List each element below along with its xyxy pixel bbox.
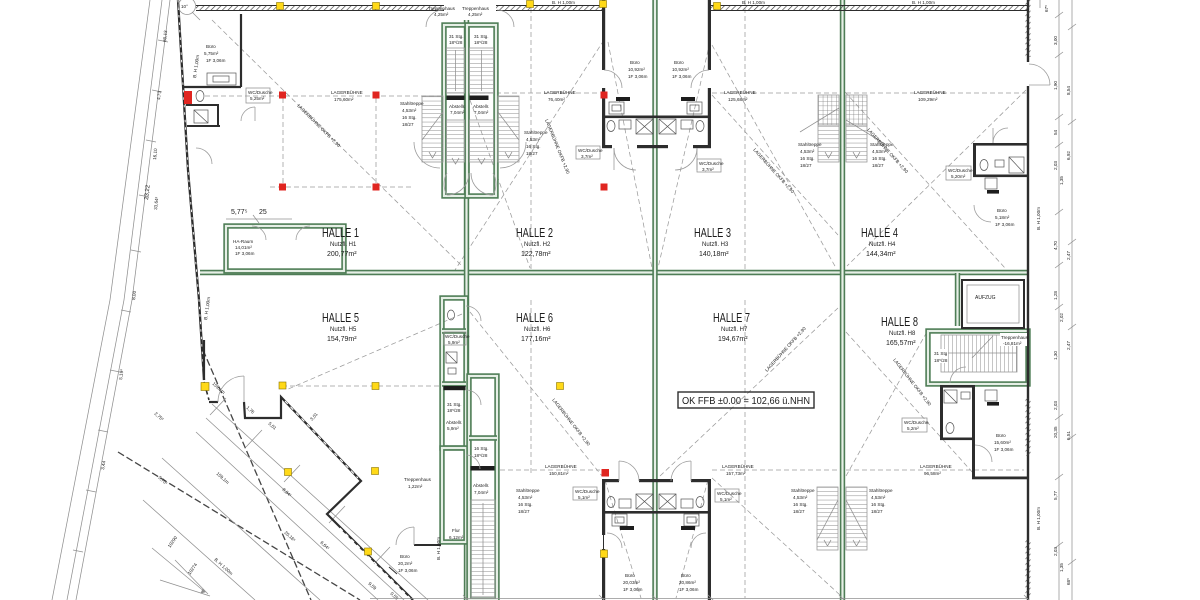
svg-text:Abstellr.: Abstellr.: [473, 483, 489, 488]
svg-text:20,2m²: 20,2m²: [398, 561, 413, 566]
svg-text:3,7m²: 3,7m²: [702, 167, 714, 172]
svg-text:1F 3,06m: 1F 3,06m: [206, 58, 226, 63]
svg-text:LAGERBÜHNE: LAGERBÜHNE: [914, 89, 946, 95]
svg-text:1F 3,06m: 1F 3,06m: [995, 222, 1015, 227]
svg-text:Büro: Büro: [630, 60, 640, 65]
svg-text:4,25m²: 4,25m²: [434, 12, 449, 17]
svg-text:5,9m²: 5,9m²: [447, 426, 459, 431]
svg-text:HALLE 1: HALLE 1: [322, 225, 359, 240]
svg-text:AUFZUG: AUFZUG: [975, 295, 996, 301]
svg-text:B. H 1,00m: B. H 1,00m: [742, 0, 765, 5]
svg-text:7,04m²: 7,04m²: [474, 110, 489, 115]
svg-text:6,92: 6,92: [1066, 151, 1071, 160]
svg-text:18/27: 18/27: [526, 151, 538, 156]
svg-text:HALLE 4: HALLE 4: [861, 225, 898, 240]
svg-text:Nutzfl. H7: Nutzfl. H7: [721, 327, 748, 333]
svg-text:18⁵/28: 18⁵/28: [474, 453, 488, 458]
svg-text:2,03: 2,03: [1053, 547, 1058, 556]
svg-text:1,90: 1,90: [1053, 81, 1058, 90]
svg-text:31 Stg: 31 Stg: [934, 351, 948, 356]
svg-text:LAGERBÜHNE: LAGERBÜHNE: [722, 463, 754, 469]
svg-text:5,1m²: 5,1m²: [578, 495, 590, 500]
svg-text:6,12m²: 6,12m²: [449, 535, 464, 540]
svg-text:177,16m²: 177,16m²: [521, 336, 551, 343]
svg-text:125,68m²: 125,68m²: [728, 97, 748, 102]
svg-text:Stahltreppe: Stahltreppe: [798, 142, 822, 147]
svg-text:1,28: 1,28: [1053, 291, 1058, 300]
svg-text:16 Stg.: 16 Stg.: [518, 502, 533, 507]
svg-text:4,70: 4,70: [1053, 241, 1058, 250]
svg-text:14,01m²: 14,01m²: [235, 245, 252, 250]
svg-text:Stahltreppe: Stahltreppe: [869, 488, 893, 493]
svg-text:B. H 1,00m: B. H 1,00m: [912, 0, 935, 5]
svg-text:2,47: 2,47: [1066, 341, 1071, 350]
svg-text:OK FFB ±0.00 = 102,66 ü.NHN: OK FFB ±0.00 = 102,66 ü.NHN: [682, 395, 810, 407]
svg-text:7,04m²: 7,04m²: [450, 110, 465, 115]
svg-text:154,79m²: 154,79m²: [327, 336, 357, 343]
svg-text:HALLE 7: HALLE 7: [713, 310, 750, 325]
svg-text:Nutzfl. H4: Nutzfl. H4: [869, 242, 896, 248]
svg-text:4,53m²: 4,53m²: [793, 495, 808, 500]
svg-text:1,30: 1,30: [1053, 351, 1058, 360]
svg-text:5,1m²: 5,1m²: [720, 497, 732, 502]
svg-text:B. H 1,00m: B. H 1,00m: [1036, 507, 1041, 530]
svg-text:4,53m²: 4,53m²: [871, 495, 886, 500]
svg-text:Flur: Flur: [452, 528, 460, 533]
svg-text:1F 3,06m: 1F 3,06m: [398, 568, 418, 573]
svg-text:4,53m²: 4,53m²: [518, 495, 533, 500]
svg-text:5,77: 5,77: [1053, 491, 1058, 500]
svg-text:WC/Dusche: WC/Dusche: [948, 168, 973, 173]
svg-text:Stahltreppe: Stahltreppe: [524, 130, 548, 135]
svg-text:HALLE 3: HALLE 3: [694, 225, 731, 240]
svg-text:WC/Dusche: WC/Dusche: [445, 334, 470, 339]
svg-text:Stahltreppe: Stahltreppe: [400, 101, 424, 106]
svg-text:3,00: 3,00: [1053, 36, 1058, 45]
svg-text:16 Stg.: 16 Stg.: [526, 144, 541, 149]
svg-text:4,73: 4,73: [156, 90, 162, 100]
svg-text:Treppenhaus: Treppenhaus: [462, 6, 490, 11]
svg-text:194,67m²: 194,67m²: [718, 336, 748, 343]
svg-text:5,75m²: 5,75m²: [204, 51, 219, 56]
svg-text:Abstellr.: Abstellr.: [473, 104, 489, 109]
svg-text:16 Stg.: 16 Stg.: [800, 156, 815, 161]
svg-text:HALLE 5: HALLE 5: [322, 310, 359, 325]
svg-text:122,78m²: 122,78m²: [521, 251, 551, 258]
svg-text:Nutzfl. H2: Nutzfl. H2: [524, 242, 551, 248]
svg-text:1F 3,06m: 1F 3,06m: [994, 447, 1014, 452]
svg-text:Büro: Büro: [625, 573, 635, 578]
svg-text:109,29m²: 109,29m²: [918, 97, 938, 102]
svg-text:Büro: Büro: [996, 433, 1006, 438]
svg-text:67⁵: 67⁵: [1044, 5, 1049, 12]
svg-text:165,57m²: 165,57m²: [886, 340, 916, 347]
svg-text:WC/Dusche: WC/Dusche: [699, 161, 724, 166]
svg-text:B. H 1,00m: B. H 1,00m: [1036, 207, 1041, 230]
svg-text:1,35: 1,35: [1059, 176, 1064, 185]
svg-text:10,92m²: 10,92m²: [628, 67, 645, 72]
svg-text:1F 3,06m: 1F 3,06m: [628, 74, 648, 79]
svg-text:16 Stg.: 16 Stg.: [871, 502, 886, 507]
svg-text:25: 25: [259, 209, 267, 216]
svg-text:HA-Raum: HA-Raum: [233, 239, 253, 244]
svg-text:2,47: 2,47: [1066, 251, 1071, 260]
svg-text:144,34m²: 144,34m²: [866, 251, 896, 258]
svg-text:Nutzfl. H5: Nutzfl. H5: [330, 327, 357, 333]
svg-text:Treppenhaus: Treppenhaus: [404, 477, 432, 482]
svg-text:18⁵/28: 18⁵/28: [447, 408, 461, 413]
svg-text:175,60m²: 175,60m²: [334, 97, 354, 102]
svg-text:B. H 1,00m: B. H 1,00m: [436, 537, 441, 560]
svg-text:140,18m²: 140,18m²: [699, 251, 729, 258]
svg-text:4,53m²: 4,53m²: [402, 108, 417, 113]
svg-text:1F 3,06m: 1F 3,06m: [679, 587, 699, 592]
svg-text:LAGERBÜHNE: LAGERBÜHNE: [544, 89, 576, 95]
svg-text:16 Stg.: 16 Stg.: [793, 502, 808, 507]
svg-text:54: 54: [1053, 129, 1058, 135]
svg-text:96,58m²: 96,58m²: [924, 471, 941, 476]
svg-text:20,35: 20,35: [1053, 426, 1058, 438]
svg-text:31 Stg.: 31 Stg.: [447, 402, 462, 407]
svg-text:31 Stg.: 31 Stg.: [474, 34, 489, 39]
svg-text:Abstellr.: Abstellr.: [449, 104, 465, 109]
svg-text:4,53m²: 4,53m²: [526, 137, 541, 142]
svg-text:Büro: Büro: [674, 60, 684, 65]
svg-text:HALLE 2: HALLE 2: [516, 225, 553, 240]
svg-text:LAGERBÜHNE: LAGERBÜHNE: [724, 89, 756, 95]
svg-text:B. H 1,00m: B. H 1,00m: [552, 0, 575, 5]
svg-text:WC/Dusche: WC/Dusche: [717, 491, 742, 496]
svg-text:Treppenhaus: Treppenhaus: [428, 6, 456, 11]
svg-text:5,9m²: 5,9m²: [448, 340, 460, 345]
svg-text:Büro: Büro: [206, 44, 216, 49]
svg-text:8,54: 8,54: [1066, 86, 1071, 95]
svg-text:4,25m²: 4,25m²: [468, 12, 483, 17]
svg-text:5,20m²: 5,20m²: [951, 174, 966, 179]
svg-text:5,2m²: 5,2m²: [907, 426, 919, 431]
svg-text:150,81m²: 150,81m²: [549, 471, 569, 476]
svg-text:Nutzfl. H3: Nutzfl. H3: [702, 242, 729, 248]
svg-text:18/27: 18/27: [518, 509, 530, 514]
svg-text:200,77m²: 200,77m²: [327, 251, 357, 258]
svg-text:4,53m²: 4,53m²: [872, 149, 887, 154]
svg-text:WC/Dusche: WC/Dusche: [578, 148, 603, 153]
svg-text:4,53m²: 4,53m²: [800, 149, 815, 154]
svg-text:Büro: Büro: [400, 554, 410, 559]
svg-text:Stahltreppe: Stahltreppe: [516, 488, 540, 493]
svg-text:16 Stg.: 16 Stg.: [402, 115, 417, 120]
svg-text:-16,81m²: -16,81m²: [1003, 341, 1022, 346]
svg-text:18⁵/28: 18⁵/28: [474, 40, 488, 45]
svg-text:Büro: Büro: [997, 208, 1007, 213]
svg-text:WC/Dusche: WC/Dusche: [575, 489, 600, 494]
svg-text:3,7m²: 3,7m²: [581, 154, 593, 159]
svg-text:Treppenhaus: Treppenhaus: [1001, 335, 1029, 340]
svg-text:10,92m²: 10,92m²: [672, 67, 689, 72]
svg-text:Büro: Büro: [681, 573, 691, 578]
svg-text:5,77⁵: 5,77⁵: [231, 209, 248, 216]
svg-text:15,60m²: 15,60m²: [994, 440, 1011, 445]
svg-text:16 Stg.: 16 Stg.: [474, 446, 489, 451]
svg-text:1,35: 1,35: [1059, 563, 1064, 572]
svg-text:1F 3,06m: 1F 3,06m: [235, 251, 255, 256]
svg-text:7,04m²: 7,04m²: [474, 490, 489, 495]
svg-text:2,03: 2,03: [1053, 401, 1058, 410]
svg-text:Nutzfl. H6: Nutzfl. H6: [524, 327, 551, 333]
svg-text:18/27: 18/27: [800, 163, 812, 168]
svg-text:LAGERBÜHNE: LAGERBÜHNE: [331, 89, 363, 95]
svg-text:2,02: 2,02: [1059, 313, 1064, 322]
svg-text:HALLE 6: HALLE 6: [516, 310, 553, 325]
svg-text:WC/Dusche: WC/Dusche: [904, 420, 929, 425]
svg-text:5,18m²: 5,18m²: [995, 215, 1010, 220]
svg-text:1F 3,06m: 1F 3,06m: [623, 587, 643, 592]
svg-text:LAGERBÜHNE: LAGERBÜHNE: [920, 463, 952, 469]
svg-text:31 Stg.: 31 Stg.: [449, 34, 464, 39]
svg-text:HALLE 8: HALLE 8: [881, 314, 918, 329]
svg-text:18⁵/28: 18⁵/28: [449, 40, 463, 45]
svg-text:1,22m²: 1,22m²: [408, 484, 423, 489]
svg-text:2,03: 2,03: [1053, 161, 1058, 170]
svg-text:Stahltreppe: Stahltreppe: [791, 488, 815, 493]
svg-text:10°: 10°: [181, 4, 188, 9]
svg-text:16 Stg.: 16 Stg.: [872, 156, 887, 161]
svg-text:5,25m²: 5,25m²: [250, 96, 265, 101]
svg-text:LAGERBÜHNE: LAGERBÜHNE: [545, 463, 577, 469]
svg-text:18/27: 18/27: [871, 509, 883, 514]
svg-text:Abstellr.: Abstellr.: [446, 420, 462, 425]
svg-text:20,03m²: 20,03m²: [623, 580, 640, 585]
svg-text:Stahltreppe: Stahltreppe: [870, 142, 894, 147]
svg-text:18/27: 18/27: [793, 509, 805, 514]
svg-text:1F 3,06m: 1F 3,06m: [672, 74, 692, 79]
svg-text:WC/Dusche: WC/Dusche: [248, 90, 273, 95]
svg-text:76,40m²: 76,40m²: [548, 97, 565, 102]
svg-text:68⁵: 68⁵: [1066, 578, 1071, 585]
svg-text:5,51: 5,51: [1066, 431, 1071, 440]
svg-text:18⁵/28: 18⁵/28: [934, 358, 948, 363]
svg-text:18/27: 18/27: [872, 163, 884, 168]
svg-text:20,86m²: 20,86m²: [679, 580, 696, 585]
svg-text:Nutzfl. H1: Nutzfl. H1: [330, 242, 357, 248]
svg-text:157,73m²: 157,73m²: [726, 471, 746, 476]
svg-text:Nutzfl. H8: Nutzfl. H8: [889, 331, 916, 337]
svg-text:18/27: 18/27: [402, 122, 414, 127]
